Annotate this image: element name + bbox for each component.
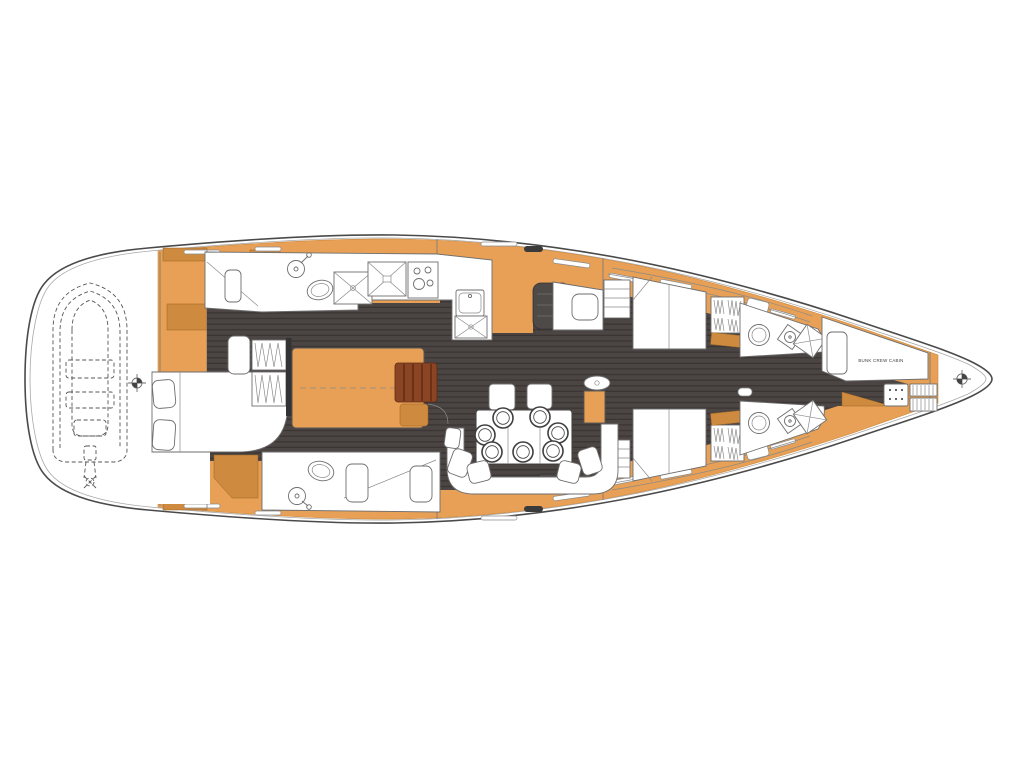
crew-berth: [827, 332, 847, 374]
hanging-locker: [711, 297, 744, 333]
pillow: [152, 379, 176, 409]
cabin-door: [286, 338, 292, 416]
locker-door: [410, 466, 432, 502]
bunk-cushion: [884, 384, 908, 406]
deck-plan-drawing: BUNK CREW CABIN: [0, 0, 1024, 768]
galley-sink: [456, 290, 484, 316]
chair: [395, 363, 437, 402]
mast-foot: [584, 376, 610, 390]
locker-aft-port: [167, 304, 207, 330]
fairlead-notch: [524, 506, 543, 512]
stool: [527, 384, 552, 409]
pillow: [152, 419, 176, 450]
shower: [334, 272, 372, 304]
hanging-locker: [711, 425, 744, 461]
step: [400, 404, 428, 426]
mast-pillar: [584, 391, 605, 423]
yacht-deck-plan: BUNK CREW CABIN: [0, 0, 1024, 768]
bench-seat: [228, 336, 250, 374]
under-bed-area: [148, 452, 210, 504]
stool: [489, 384, 515, 410]
galley-locker: [455, 316, 487, 338]
locker-door: [572, 294, 598, 320]
seat: [225, 270, 241, 302]
floor-hatch: [738, 388, 752, 396]
wardrobe: [252, 340, 286, 406]
fairlead-notch: [524, 246, 543, 252]
fridge: [368, 262, 406, 296]
locker-door: [346, 464, 368, 502]
stove: [408, 262, 438, 298]
crew-cabin-label: BUNK CREW CABIN: [858, 358, 903, 363]
